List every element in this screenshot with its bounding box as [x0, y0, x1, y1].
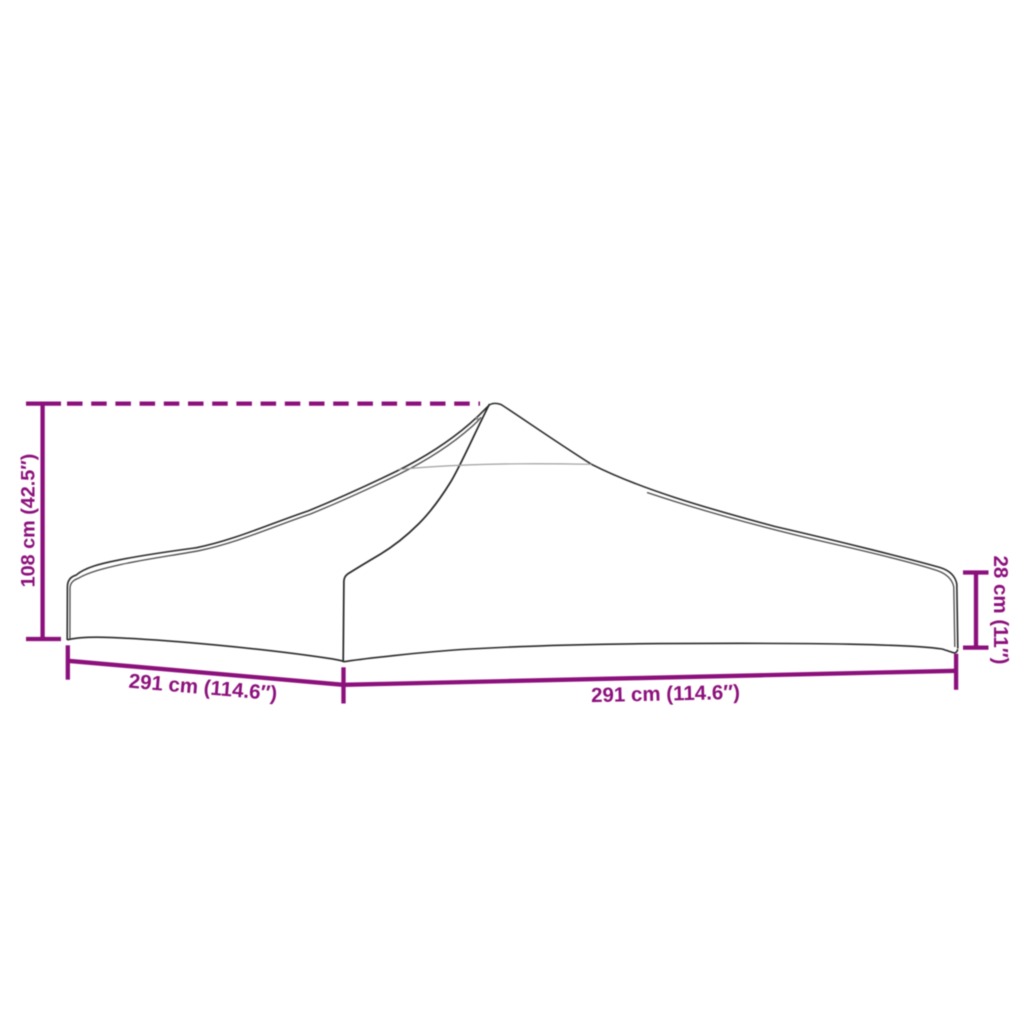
svg-text:28 cm (11″): 28 cm (11″): [989, 556, 1012, 665]
svg-text:108 cm (42.5″): 108 cm (42.5″): [18, 454, 40, 588]
svg-text:291 cm (114.6″): 291 cm (114.6″): [591, 681, 740, 707]
